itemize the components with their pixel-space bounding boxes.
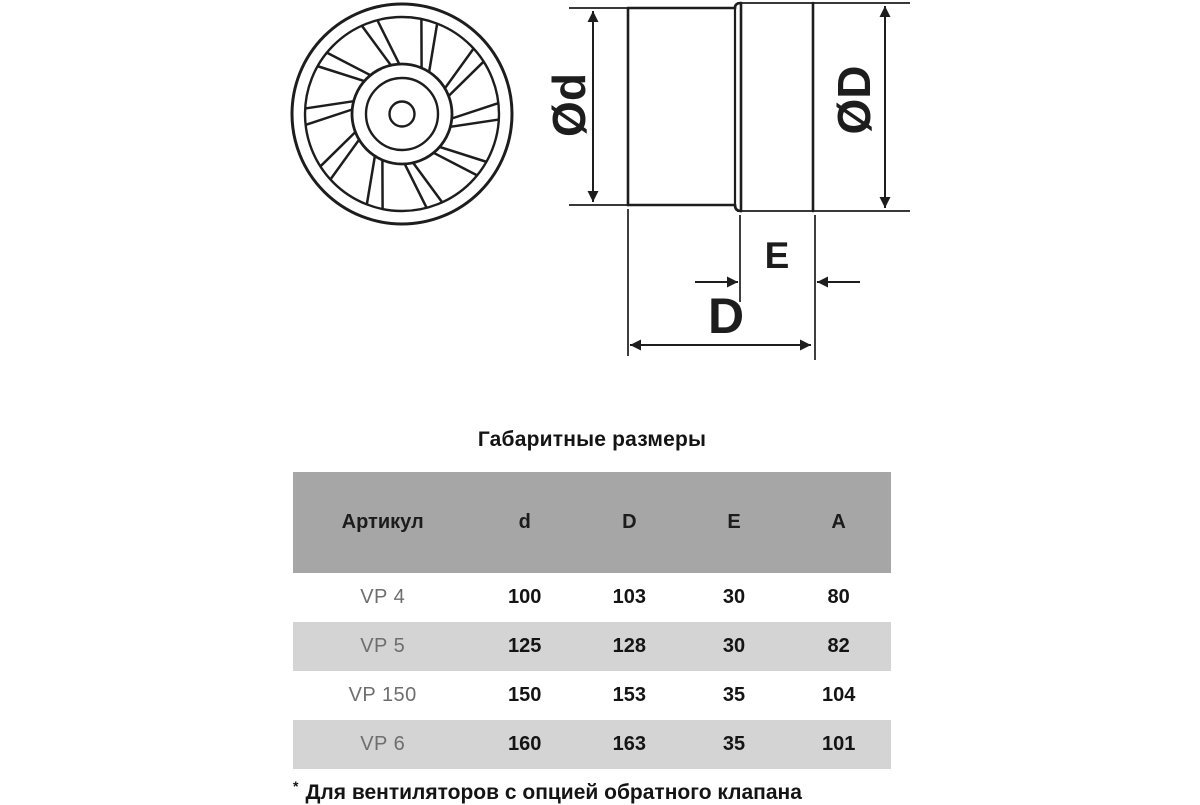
dimensions-section: Габаритные размеры Артикул d D E A VP 41… [293, 425, 891, 805]
value-cell: 101 [786, 720, 891, 769]
fan-blade-edge [445, 49, 473, 88]
article-cell: VP 4 [293, 573, 472, 622]
fan-blade-edge [450, 120, 498, 127]
value-cell: 82 [786, 622, 891, 671]
fan-inner-rim-circle [305, 17, 499, 211]
fan-blades [306, 20, 498, 208]
fan-side-view: Ød ØD E D [545, 0, 925, 370]
fan-blade-edge [367, 156, 375, 203]
value-cell: 80 [786, 573, 891, 622]
table-row: VP 51251283082 [293, 622, 891, 671]
fan-blade-edge [362, 27, 391, 66]
article-cell: VP 5 [293, 622, 472, 671]
table-row: VP 41001033080 [293, 573, 891, 622]
value-cell: 163 [577, 720, 682, 769]
dimension-label-total-depth: D [708, 288, 744, 344]
footnote-text: Для вентиляторов с опцией обратного клап… [305, 781, 801, 804]
dimension-label-flange-depth: E [765, 235, 790, 276]
fan-blade-edge [452, 103, 498, 118]
fan-front-view [287, 0, 517, 230]
value-cell: 35 [682, 720, 787, 769]
column-header-A: A [786, 472, 891, 573]
fan-blade-edge [413, 163, 442, 202]
fan-blade-edge [331, 140, 359, 179]
value-cell: 128 [577, 622, 682, 671]
table-header: Артикул d D E A [293, 472, 891, 573]
fan-hub-inner-circle [366, 78, 438, 150]
article-cell: VP 150 [293, 671, 472, 720]
column-header-d: d [472, 472, 577, 573]
value-cell: 150 [472, 671, 577, 720]
fan-outer-rim-circle [292, 4, 512, 224]
fan-blade-edge [307, 110, 353, 125]
column-header-article: Артикул [293, 472, 472, 573]
column-header-E: E [682, 472, 787, 573]
value-cell: 100 [472, 573, 577, 622]
table-row: VP 15015015335104 [293, 671, 891, 720]
value-cell: 153 [577, 671, 682, 720]
fan-shaft-hole [390, 102, 415, 127]
dimensions-table: Артикул d D E A VP 41001033080VP 5125128… [293, 472, 891, 769]
value-cell: 103 [577, 573, 682, 622]
footnote: *Для вентиляторов с опцией обратного кла… [293, 774, 891, 805]
column-header-D: D [577, 472, 682, 573]
value-cell: 125 [472, 622, 577, 671]
article-cell: VP 6 [293, 720, 472, 769]
dimension-label-small-diameter: Ød [545, 73, 595, 137]
value-cell: 104 [786, 671, 891, 720]
fan-blade-edge [449, 62, 483, 96]
value-cell: 35 [682, 671, 787, 720]
footnote-marker: * [293, 778, 298, 794]
value-cell: 30 [682, 573, 787, 622]
table-row: VP 616016335101 [293, 720, 891, 769]
value-cell: 30 [682, 622, 787, 671]
dimension-label-large-diameter: ØD [828, 66, 880, 135]
fan-blade-edge [405, 164, 427, 207]
value-cell: 160 [472, 720, 577, 769]
fan-blade-edge [306, 101, 354, 108]
fan-blade-edge [321, 132, 355, 166]
fan-blade-edge [378, 21, 400, 64]
dimensions-table-body: VP 41001033080VP 51251283082VP 150150153… [293, 573, 891, 769]
fan-blade-edge [429, 25, 437, 72]
table-title: Габаритные размеры [293, 425, 891, 455]
